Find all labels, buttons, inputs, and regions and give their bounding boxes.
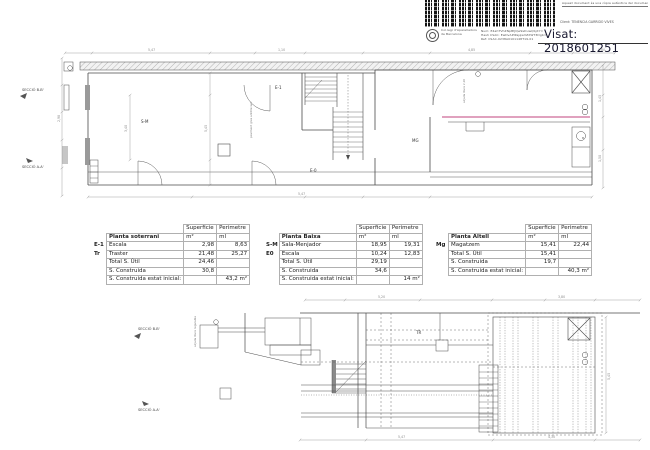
table-cell: Total S. Útil <box>107 259 184 268</box>
table-cell <box>435 259 449 268</box>
table-cell <box>265 259 279 268</box>
table-cell: 30,8 <box>184 267 217 276</box>
section-arrow-icon <box>134 333 141 339</box>
visat-underline <box>538 43 648 44</box>
area-table-planta-soterrani: SuperficiePerimetrePlanta soterranim²mlE… <box>93 224 250 285</box>
table-cell: 21,48 <box>184 250 217 259</box>
dimension-label: 3,80 <box>558 295 565 299</box>
table-cell <box>184 276 217 285</box>
dimension-label: 4,30 <box>548 435 555 439</box>
table-cell <box>389 267 422 276</box>
table-cell <box>279 225 356 234</box>
table-cell: 19,7 <box>526 259 559 268</box>
plan-annotation: alçada lliure 2,20 <box>462 79 466 103</box>
table-cell: 12,83 <box>389 250 422 259</box>
table-cell: Sala-Menjador <box>279 242 356 251</box>
joists <box>500 317 591 433</box>
dimension-label: 1,45 <box>598 95 602 102</box>
table-cell: 22,44 <box>559 242 592 251</box>
table-cell: 10,24 <box>356 250 389 259</box>
table-cell: Planta soterrani <box>107 233 184 242</box>
sink-icon <box>577 132 586 141</box>
table-cell: 2,98 <box>184 242 217 251</box>
table-cell: 24,46 <box>184 259 217 268</box>
table-cell: ml <box>559 233 592 242</box>
table-cell <box>435 250 449 259</box>
table-cell: Perimetre <box>389 225 422 234</box>
table-cell: 8,63 <box>217 242 250 251</box>
table-cell: 25,27 <box>217 250 250 259</box>
plan-annotation: paviment gres antilliscant <box>249 101 253 138</box>
table-cell: 15,41 <box>526 242 559 251</box>
table-cell <box>93 267 107 276</box>
stamp-client-line: Client: TENENCIA GARRIDO VIVES <box>560 20 648 24</box>
table-cell: Tr <box>93 250 107 259</box>
table-cell <box>356 276 389 285</box>
table-cell: 43,2 m² <box>217 276 250 285</box>
table-cell: Planta Baixa <box>279 233 356 242</box>
fixture-icon <box>582 352 588 358</box>
table-cell: 40,3 m² <box>559 267 592 276</box>
table-cell <box>559 250 592 259</box>
table-cell: 34,6 <box>356 267 389 276</box>
stairs-upper <box>305 73 363 160</box>
room-label-mg: MG <box>412 138 419 143</box>
party-wall <box>80 62 615 70</box>
table-cell: S. Construida estat inicial: <box>449 267 526 276</box>
table-cell: Superficie <box>184 225 217 234</box>
section-label-bb2: SECCIÓ B-B' <box>138 326 160 331</box>
annotation-box <box>200 325 218 348</box>
table-cell: S-M <box>265 242 279 251</box>
area-table-planta-altell: SuperficiePerimetrePlanta Altellm²mlMgMa… <box>435 224 592 276</box>
table-cell: 19,31 <box>389 242 422 251</box>
stamp-authenticity-note: Aquest document és una còpia autèntica d… <box>562 1 648 7</box>
section-label-aa2: SECCIÓ A-A' <box>138 407 160 412</box>
table-cell: Escala <box>107 242 184 251</box>
table-cell: S. Construida <box>449 259 526 268</box>
table-cell: Perimetre <box>217 225 250 234</box>
table-cell <box>217 259 250 268</box>
stamp-barcode <box>425 0 555 27</box>
section-label-aa: SECCIÓ A-A' <box>22 164 44 169</box>
table-cell: 15,41 <box>526 250 559 259</box>
table-cell: S. Construida estat inicial: <box>107 276 184 285</box>
fixture-icon <box>582 359 588 365</box>
table-cell: ml <box>217 233 250 242</box>
dimension-label: 4,85 <box>468 48 475 52</box>
table-cell: Traster <box>107 250 184 259</box>
table-cell <box>107 225 184 234</box>
table-cell: 29,19 <box>356 259 389 268</box>
table-cell <box>93 276 107 285</box>
college-logo-icon <box>426 29 439 42</box>
table-cell <box>265 267 279 276</box>
fixture-icon <box>476 72 481 77</box>
table-cell <box>526 267 559 276</box>
pillar <box>218 144 230 156</box>
table-cell <box>449 225 526 234</box>
table-cell: Escala <box>279 250 356 259</box>
section-arrow-icon <box>142 401 149 406</box>
dimension-label: 5,47 <box>298 192 305 196</box>
room-label-sm: S-M <box>141 119 149 124</box>
table-cell: m² <box>356 233 389 242</box>
table-cell: Perimetre <box>559 225 592 234</box>
dimension-label: 1,50 <box>598 155 602 162</box>
room-label-e0: E-0 <box>310 168 317 173</box>
section-arrow-icon <box>26 158 33 163</box>
dimension-label: 5,47 <box>148 48 155 52</box>
skylight-crossed-box-icon <box>568 318 590 340</box>
table-cell: Superficie <box>356 225 389 234</box>
section-arrow-icon <box>20 93 27 99</box>
door-arcs <box>138 70 547 185</box>
table-cell <box>265 225 279 234</box>
table-cell: Mg <box>435 242 449 251</box>
table-cell: 14 m² <box>389 276 422 285</box>
table-cell <box>265 276 279 285</box>
dimension-label: 5,20 <box>378 295 385 299</box>
table-cell <box>93 259 107 268</box>
table-cell: m² <box>184 233 217 242</box>
table-cell: Magatzem <box>449 242 526 251</box>
kitchen-unit <box>572 127 590 167</box>
table-cell <box>217 267 250 276</box>
dimension-label: 3,40 <box>124 125 128 132</box>
table-cell: Total S. Útil <box>449 250 526 259</box>
dimension-label: 2,98 <box>57 115 61 122</box>
table-cell: Planta Altell <box>449 233 526 242</box>
table-cell: Total S. Útil <box>279 259 356 268</box>
table-cell: E-1 <box>93 242 107 251</box>
table-cell <box>265 233 279 242</box>
table-cell: m² <box>526 233 559 242</box>
table-cell <box>389 259 422 268</box>
area-table-planta-baixa: SuperficiePerimetrePlanta Baixam²mlS-MSa… <box>265 224 423 285</box>
skylight-crossed-box-icon <box>572 71 590 93</box>
table-cell: S. Construida <box>107 267 184 276</box>
dimension-label: 5,47 <box>398 435 405 439</box>
table-cell: S. Construida <box>279 267 356 276</box>
table-cell <box>93 225 107 234</box>
college-name: Col·legi d'Aparelladors de Barcelona <box>441 29 477 37</box>
table-cell <box>559 259 592 268</box>
table-cell <box>435 267 449 276</box>
table-cell <box>435 233 449 242</box>
room-label-tr: TR <box>415 330 421 335</box>
college-stamp: Col·legi d'Aparelladors de Barcelona <box>426 29 477 42</box>
room-label-e1: E-1 <box>275 85 282 90</box>
plan-annotation: alçada lliure regulable <box>193 316 197 347</box>
visat-number: Visat: 2018601251 <box>544 27 650 55</box>
dimension-label: 5,45 <box>607 373 611 380</box>
table-cell: 18,95 <box>356 242 389 251</box>
dimension-label: 1,10 <box>278 48 285 52</box>
table-cell: S. Construida estat inicial: <box>279 276 356 285</box>
table-cell: Superficie <box>526 225 559 234</box>
table-cell <box>435 225 449 234</box>
stairs-section <box>332 360 366 393</box>
table-cell: ml <box>389 233 422 242</box>
section-label-bb: SECCIÓ B-B' <box>22 87 44 92</box>
table-cell: E0 <box>265 250 279 259</box>
table-cell <box>93 233 107 242</box>
dimension-label: 5,45 <box>204 125 208 132</box>
